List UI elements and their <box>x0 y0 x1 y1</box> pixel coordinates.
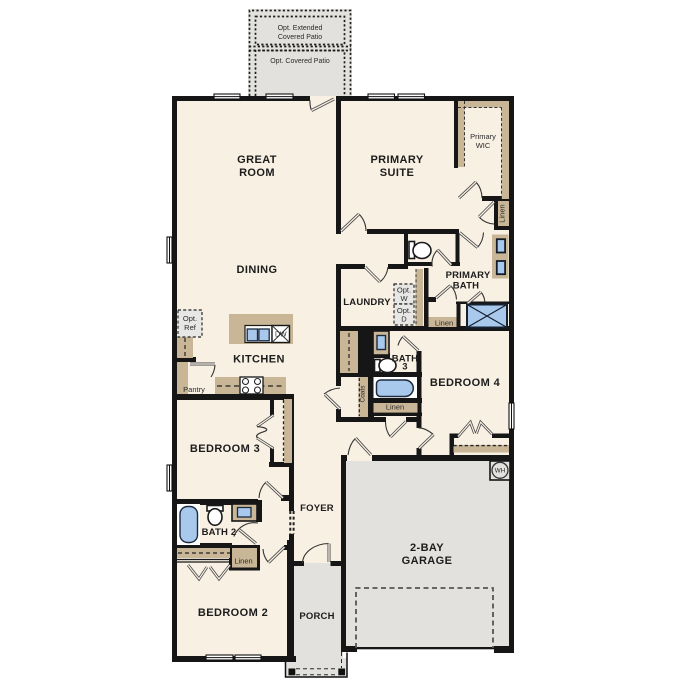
svg-text:ROOM: ROOM <box>239 167 275 179</box>
svg-text:Primary: Primary <box>470 132 496 141</box>
svg-text:Coats: Coats <box>359 385 366 403</box>
svg-text:Opt. Covered Patio: Opt. Covered Patio <box>270 58 330 65</box>
svg-text:Linen: Linen <box>386 402 404 411</box>
svg-text:Pantry: Pantry <box>183 385 205 394</box>
svg-text:KITCHEN: KITCHEN <box>233 354 285 366</box>
svg-text:WIC: WIC <box>476 141 491 150</box>
svg-text:BEDROOM 2: BEDROOM 2 <box>198 607 268 619</box>
svg-text:BATH 2: BATH 2 <box>202 527 237 538</box>
svg-text:3: 3 <box>402 362 407 373</box>
svg-text:W: W <box>400 294 408 303</box>
svg-text:SUITE: SUITE <box>380 167 414 179</box>
svg-text:GARAGE: GARAGE <box>402 555 453 567</box>
svg-text:2-BAY: 2-BAY <box>410 542 444 554</box>
svg-text:PRIMARY: PRIMARY <box>370 154 423 166</box>
svg-text:WH: WH <box>495 468 506 475</box>
svg-text:DW: DW <box>275 332 287 339</box>
svg-text:BATH: BATH <box>453 281 479 292</box>
svg-text:PORCH: PORCH <box>299 611 334 622</box>
svg-text:FOYER: FOYER <box>300 503 334 514</box>
svg-text:PRIMARY: PRIMARY <box>446 270 491 281</box>
svg-text:BEDROOM 4: BEDROOM 4 <box>430 377 501 389</box>
svg-text:Linen: Linen <box>435 319 453 328</box>
svg-text:Opt. Extended: Opt. Extended <box>278 25 323 32</box>
svg-text:Linen: Linen <box>234 557 252 566</box>
svg-text:Covered Patio: Covered Patio <box>278 34 322 41</box>
svg-text:LAUNDRY: LAUNDRY <box>343 297 391 308</box>
svg-text:DINING: DINING <box>237 264 278 276</box>
svg-text:D: D <box>401 315 407 324</box>
svg-text:Ref: Ref <box>184 323 197 332</box>
svg-text:Opt.: Opt. <box>183 314 197 323</box>
svg-text:Linen: Linen <box>498 204 507 222</box>
svg-text:GREAT: GREAT <box>237 154 277 166</box>
svg-text:BEDROOM 3: BEDROOM 3 <box>190 443 260 455</box>
